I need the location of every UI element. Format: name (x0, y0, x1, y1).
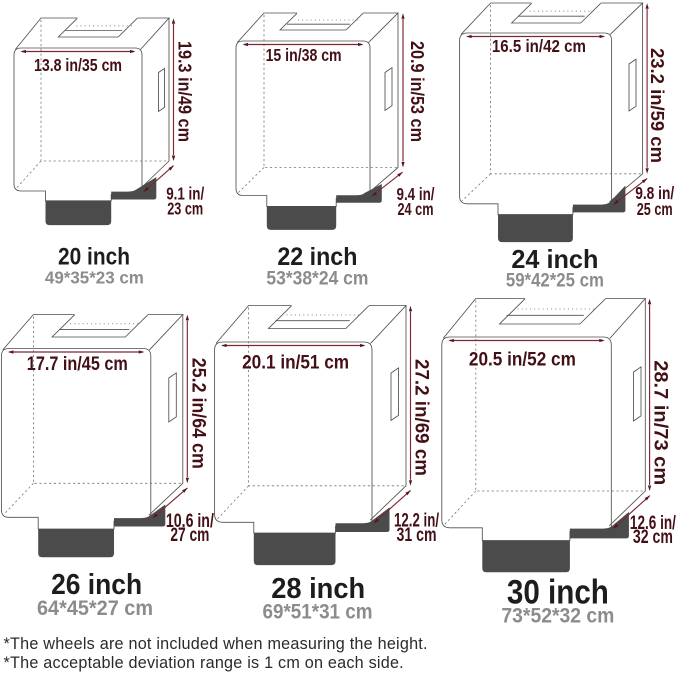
svg-text:73*52*32 cm: 73*52*32 cm (501, 604, 614, 628)
svg-text:53*38*24 cm: 53*38*24 cm (266, 268, 368, 289)
svg-text:64*45*27 cm: 64*45*27 cm (37, 596, 153, 620)
svg-text:*The wheels are not included w: *The wheels are not included when measur… (4, 635, 428, 653)
svg-text:24 cm: 24 cm (398, 199, 434, 219)
svg-text:19.3 in/49 cm: 19.3 in/49 cm (175, 41, 196, 142)
svg-text:25 cm: 25 cm (637, 199, 673, 219)
svg-text:59*42*25 cm: 59*42*25 cm (506, 270, 604, 292)
svg-text:32 cm: 32 cm (633, 527, 673, 548)
svg-text:20.5 in/52 cm: 20.5 in/52 cm (469, 349, 576, 370)
svg-text:20 inch: 20 inch (58, 243, 130, 270)
svg-text:69*51*31 cm: 69*51*31 cm (263, 600, 373, 624)
svg-text:25.2 in/64 cm: 25.2 in/64 cm (188, 358, 209, 469)
svg-text:17.7 in/45 cm: 17.7 in/45 cm (27, 354, 128, 375)
svg-text:27.2 in/69 cm: 27.2 in/69 cm (411, 359, 432, 476)
svg-text:49*35*23 cm: 49*35*23 cm (45, 268, 144, 288)
svg-text:13.8 in/35 cm: 13.8 in/35 cm (34, 55, 122, 75)
svg-text:22 inch: 22 inch (277, 243, 357, 271)
svg-text:31 cm: 31 cm (397, 525, 437, 546)
svg-text:20.1 in/51 cm: 20.1 in/51 cm (242, 352, 349, 373)
svg-text:27 cm: 27 cm (170, 525, 209, 546)
svg-text:*The acceptable deviation rang: *The acceptable deviation range is 1 cm … (4, 654, 404, 672)
svg-text:20.9 in/53 cm: 20.9 in/53 cm (407, 41, 428, 142)
svg-text:15 in/38 cm: 15 in/38 cm (266, 45, 342, 65)
svg-text:16.5 in/42 cm: 16.5 in/42 cm (492, 36, 586, 56)
svg-text:23 cm: 23 cm (167, 198, 203, 218)
svg-text:23.2 in/59 cm: 23.2 in/59 cm (647, 48, 668, 163)
svg-text:28.7 in/73 cm: 28.7 in/73 cm (650, 360, 671, 485)
